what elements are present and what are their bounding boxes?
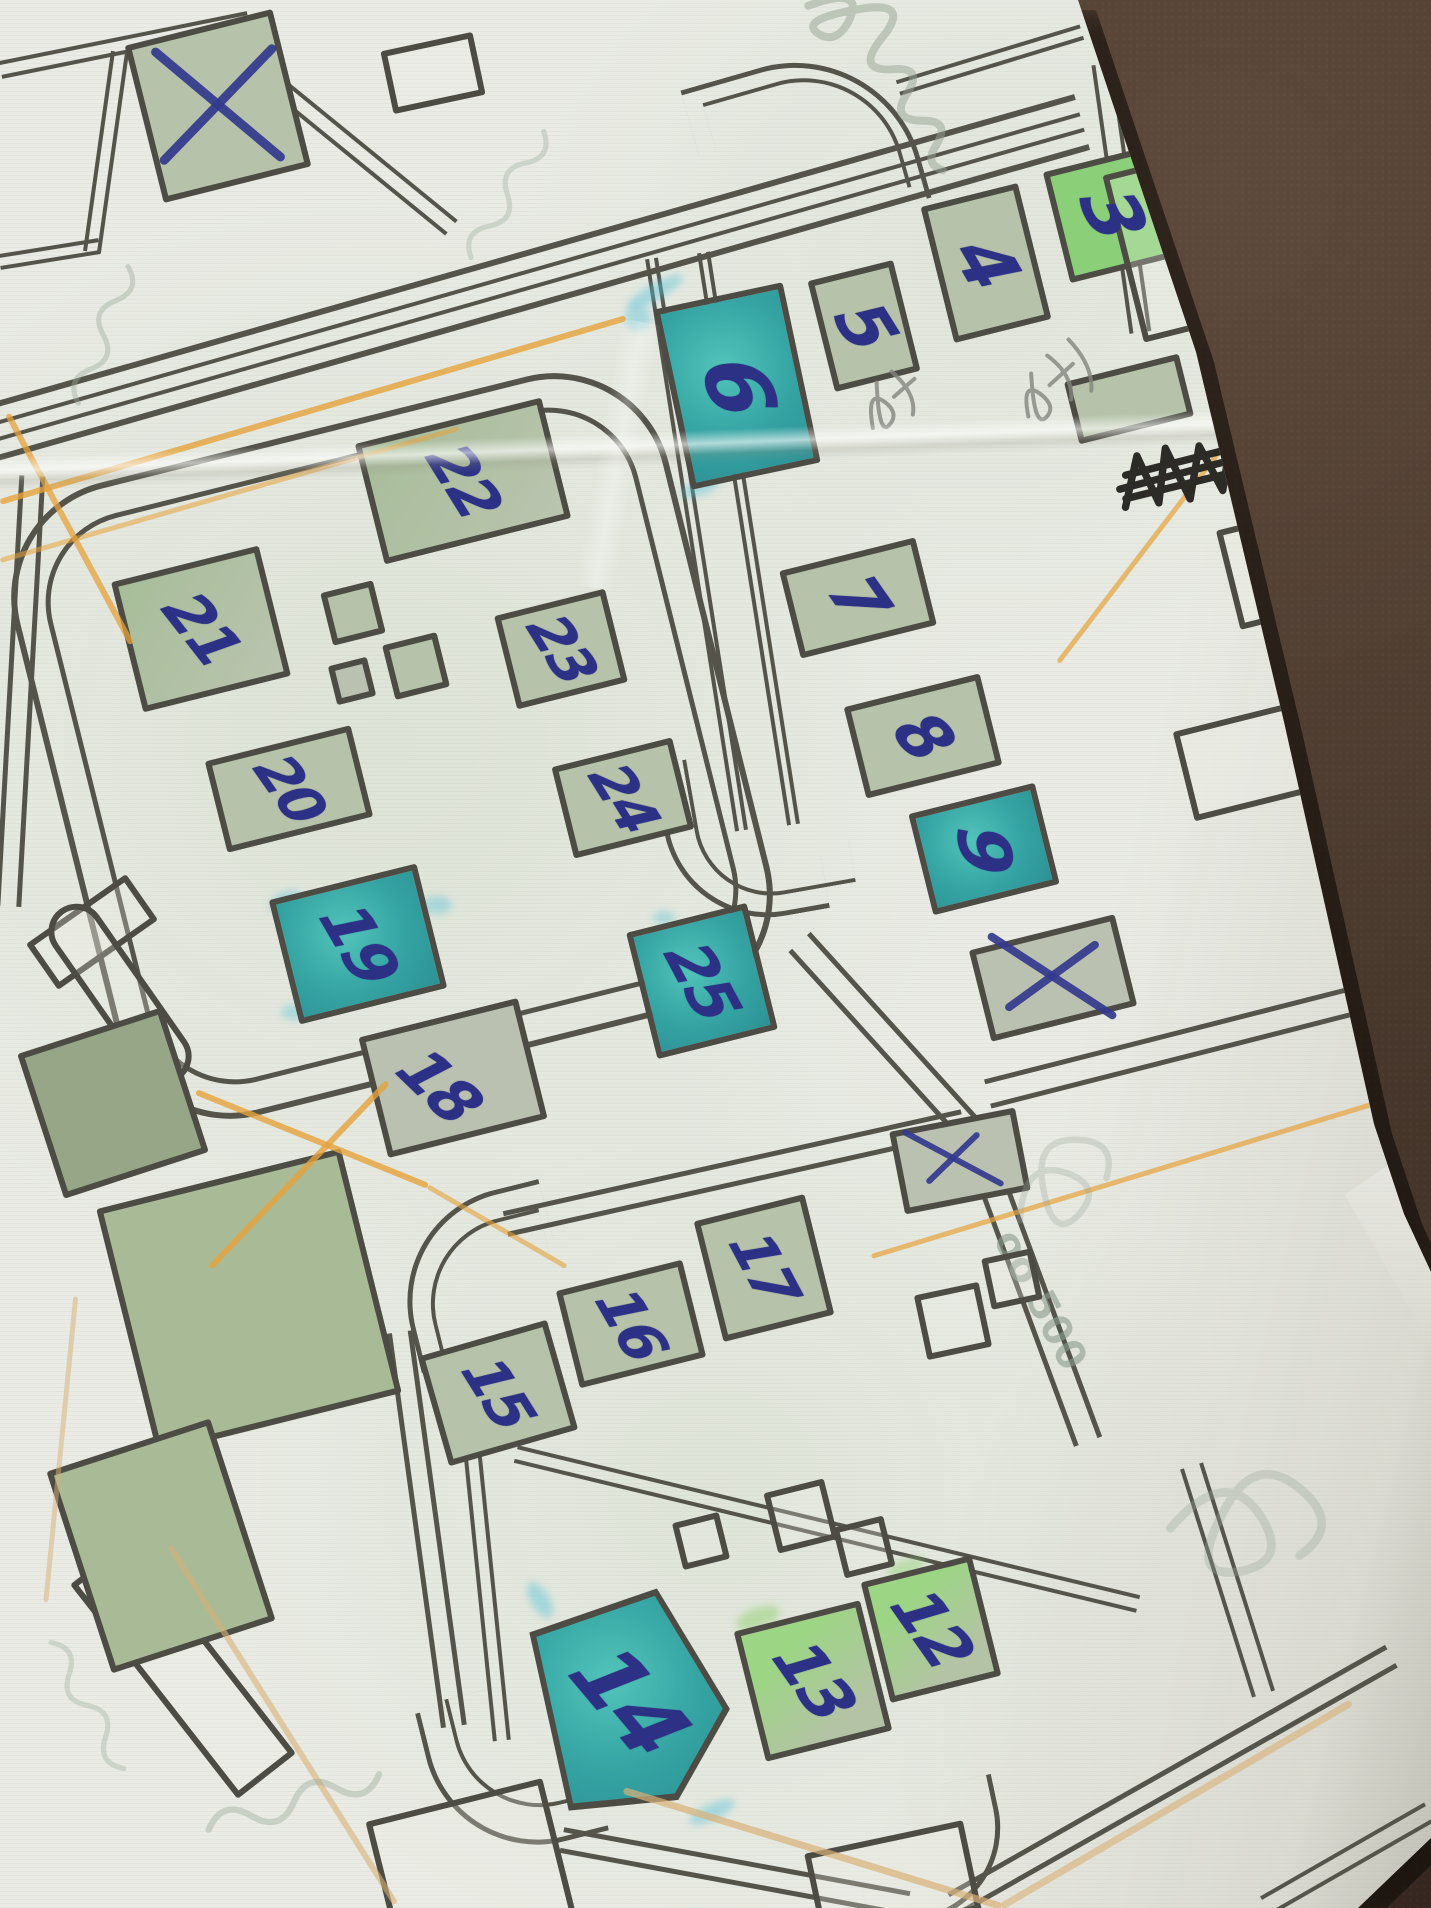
photo-of-annotated-paper-map: 34567892221232024192518171615141312oo 50… [0, 0, 1431, 1908]
highlighter-smudge [522, 1578, 558, 1622]
blue-x-mark [1269, 198, 1392, 333]
building-w5 [914, 1282, 992, 1360]
building-w4 [380, 32, 485, 114]
building-park-diamond [96, 1148, 401, 1453]
building-number: 9 [939, 826, 1028, 871]
blue-x-mark [1280, 204, 1379, 328]
building-w6 [981, 1248, 1043, 1310]
building-w9 [672, 1512, 730, 1570]
building-park-trapezoid [46, 1419, 275, 1674]
road-segment [83, 51, 129, 253]
building-w7 [763, 1478, 838, 1553]
road-segment [1148, 1, 1266, 45]
building-w8 [832, 1515, 895, 1578]
paper-sheet: 34567892221232024192518171615141312oo 50… [0, 0, 1431, 1908]
road-segment [0, 238, 101, 270]
highlighter-smudge [625, 305, 651, 331]
crossed-out-pen-mark [1282, 248, 1350, 316]
map-layer: 34567892221232024192518171615141312oo 50… [0, 0, 1431, 1908]
faint-pencil-scribble [1141, 1438, 1359, 1602]
road-segment [1261, 1802, 1431, 1908]
